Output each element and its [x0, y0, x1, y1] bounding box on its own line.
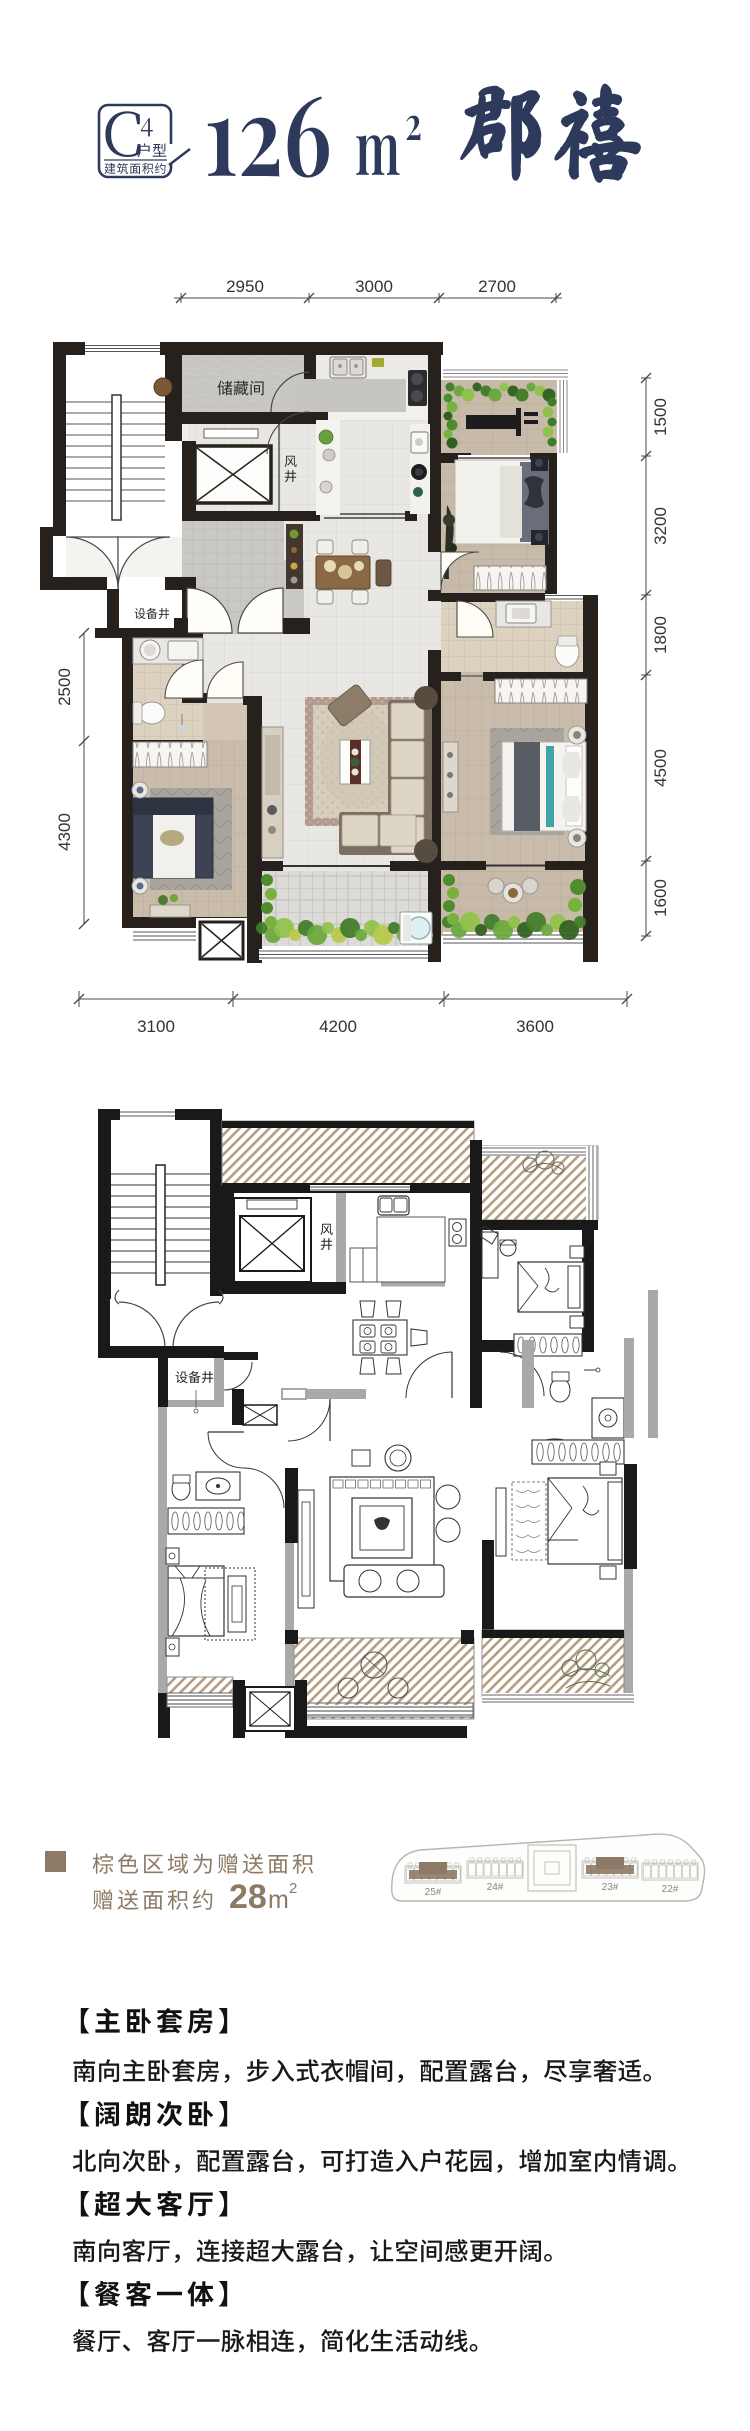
svg-text:4200: 4200	[319, 1017, 357, 1036]
svg-text:1600: 1600	[651, 879, 670, 917]
svg-text:23#: 23#	[602, 1882, 619, 1893]
svg-text:4300: 4300	[55, 813, 74, 851]
svg-text:m: m	[268, 1886, 289, 1914]
svg-text:4500: 4500	[651, 749, 670, 787]
svg-text:3200: 3200	[651, 507, 670, 545]
svg-text:2: 2	[289, 1880, 297, 1897]
svg-text:1800: 1800	[651, 616, 670, 654]
svg-text:24#: 24#	[487, 1882, 504, 1893]
svg-text:3100: 3100	[137, 1017, 175, 1036]
svg-text:3000: 3000	[355, 277, 393, 296]
svg-text:3600: 3600	[516, 1017, 554, 1036]
svg-text:2950: 2950	[226, 277, 264, 296]
svg-text:2700: 2700	[478, 277, 516, 296]
svg-text:22#: 22#	[662, 1884, 679, 1895]
svg-text:28: 28	[229, 1878, 267, 1916]
svg-text:1500: 1500	[651, 398, 670, 436]
svg-text:25#: 25#	[425, 1887, 442, 1898]
svg-text:2500: 2500	[55, 668, 74, 706]
